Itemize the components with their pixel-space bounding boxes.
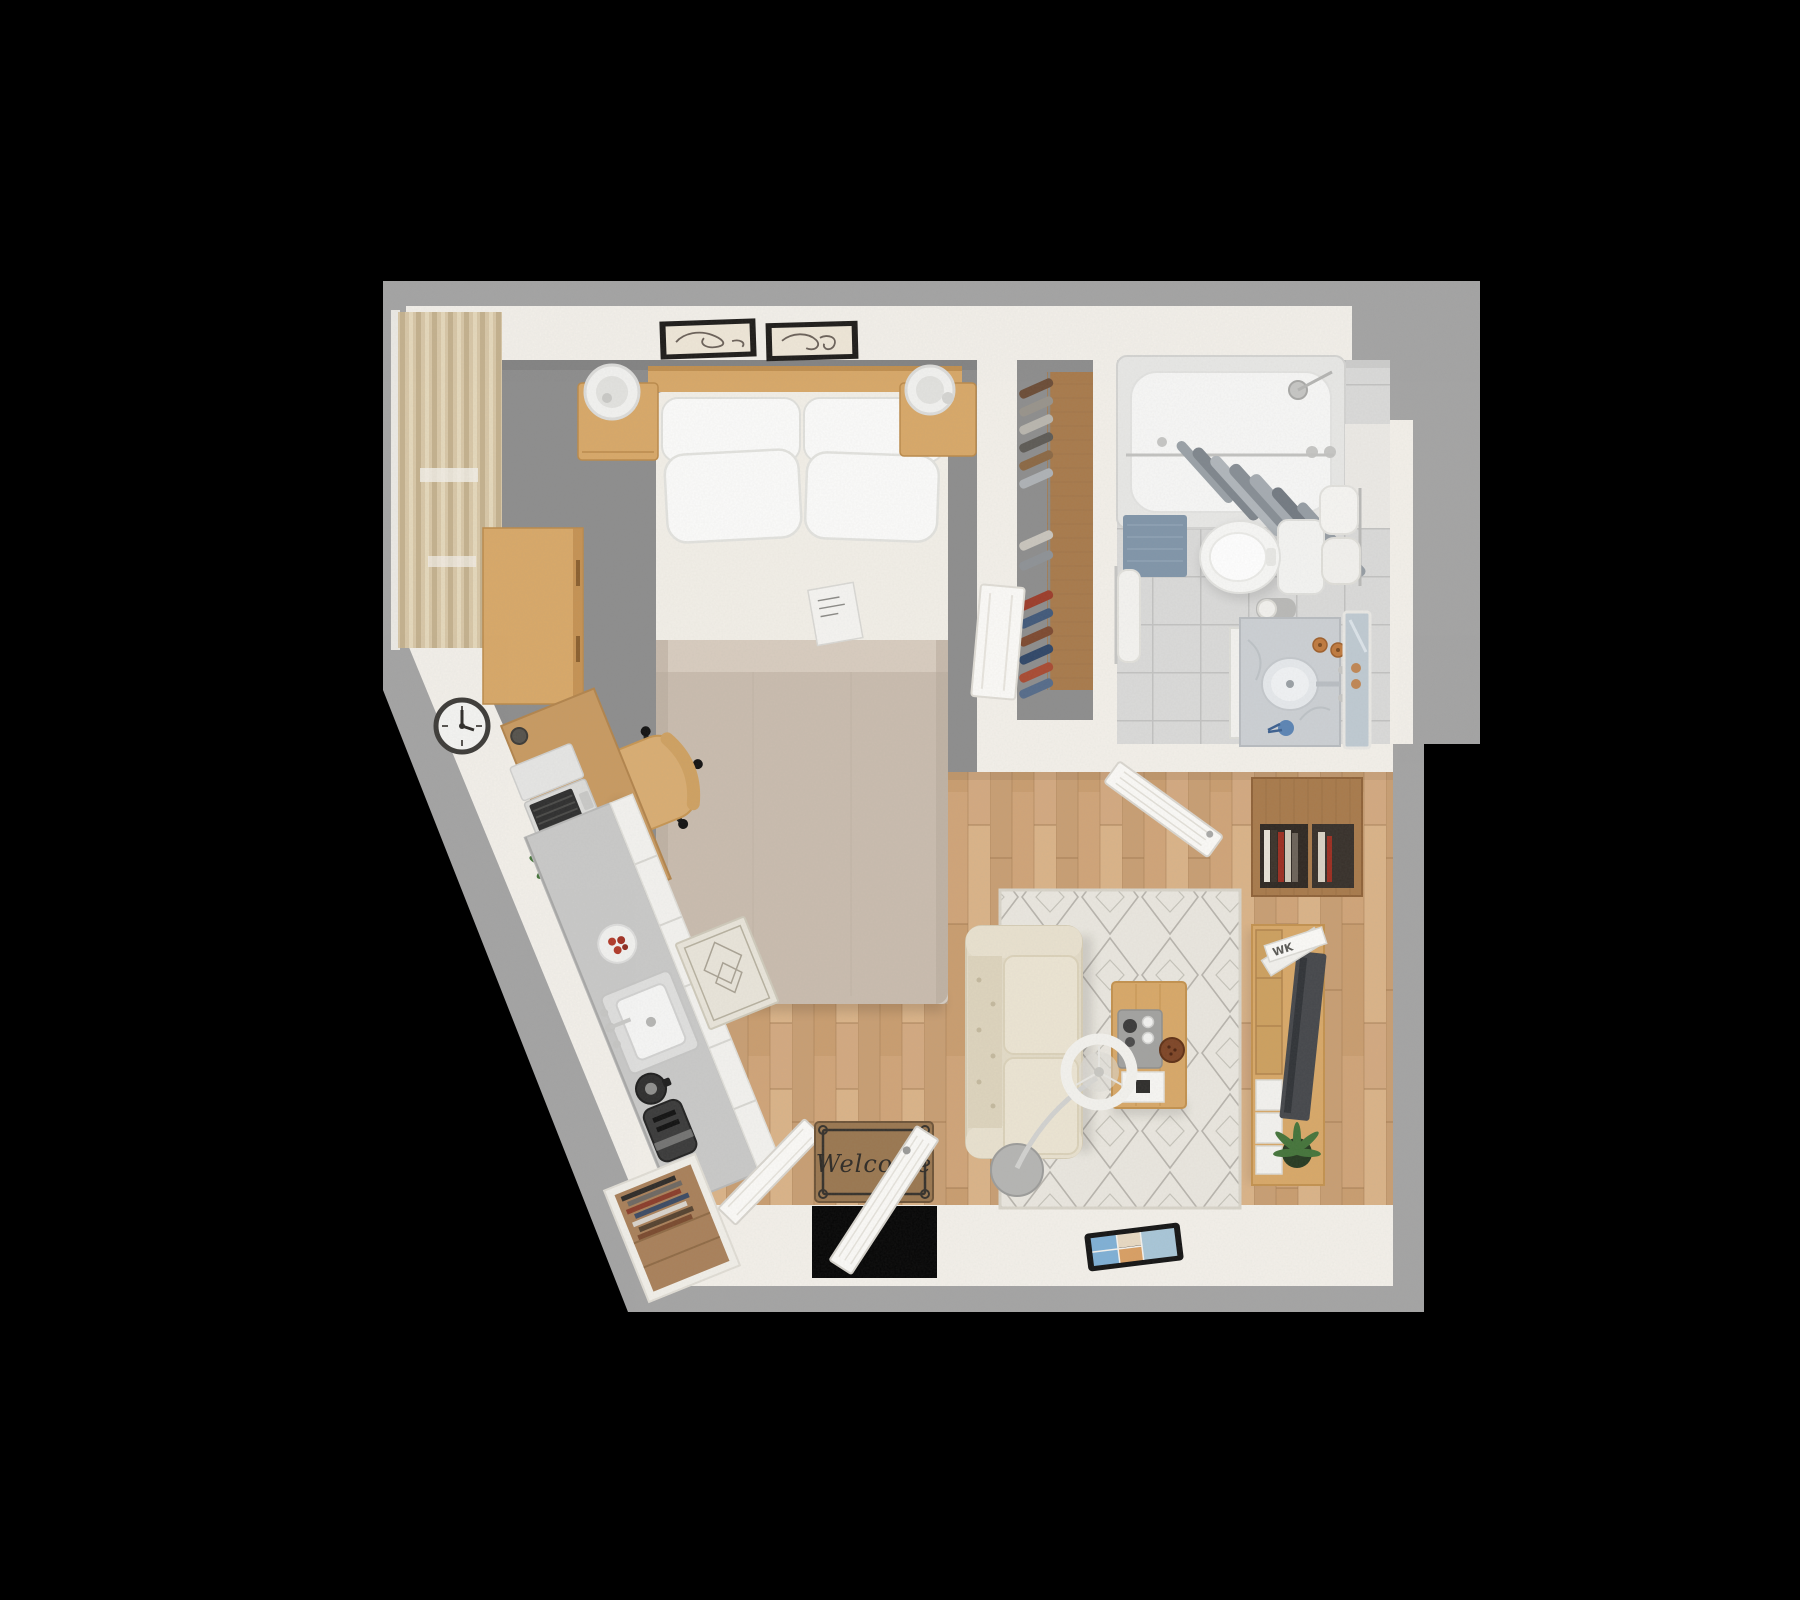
floorplan-render: WK bbox=[0, 0, 1800, 1600]
